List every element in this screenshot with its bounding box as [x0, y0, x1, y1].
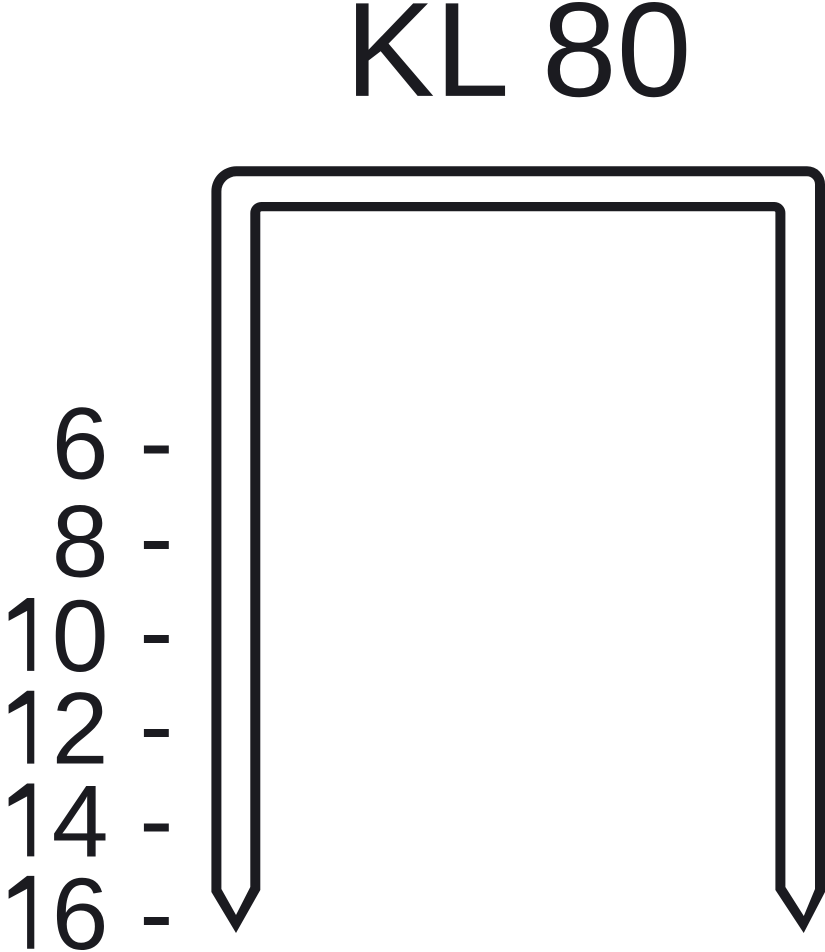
svg-text:6: 6 — [52, 387, 109, 501]
svg-text:KL 80: KL 80 — [345, 0, 692, 125]
svg-text:-: - — [139, 856, 173, 952]
svg-text:6: 6 — [52, 857, 109, 952]
